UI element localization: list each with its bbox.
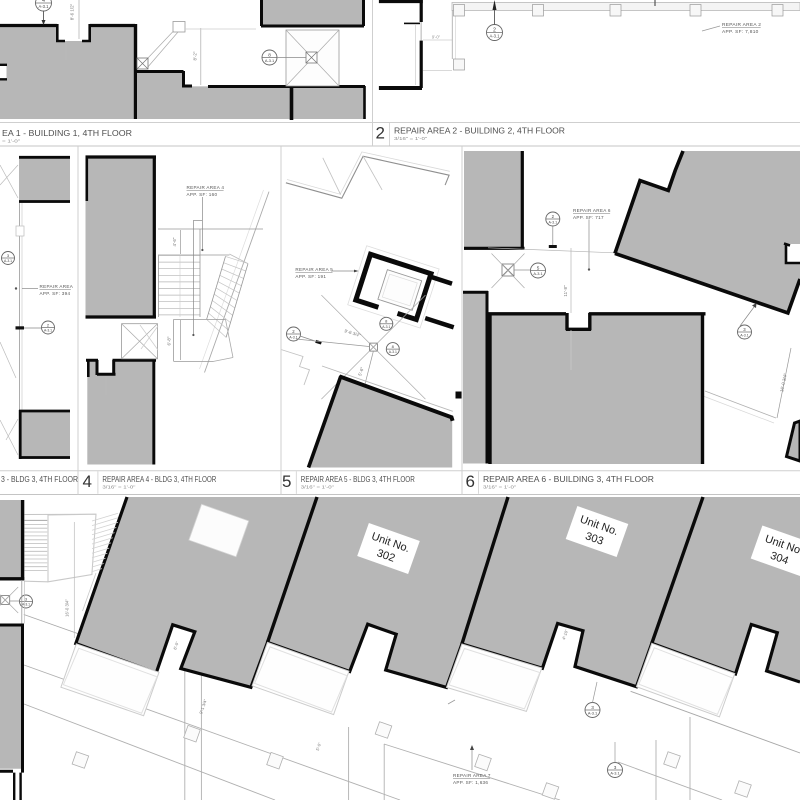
svg-text:A-3.1: A-3.1 [740,333,749,337]
svg-text:REPAIR AREA 4 - BLDG 3, 4TH FL: REPAIR AREA 4 - BLDG 3, 4TH FLOOR [102,475,216,484]
svg-text:A-3.1: A-3.1 [489,33,500,38]
svg-text:6: 6 [466,472,475,491]
svg-text:3/16" = 1'-0": 3/16" = 1'-0" [301,484,334,489]
svg-text:REPAIR AREA 5: REPAIR AREA 5 [295,267,333,272]
svg-text:A-3.1: A-3.1 [533,271,542,276]
svg-text:APP. SF: 394: APP. SF: 394 [40,291,71,296]
svg-text:APP. SF: 1,636: APP. SF: 1,636 [453,780,488,785]
svg-text:8'-6 1/2": 8'-6 1/2" [70,3,75,20]
svg-text:4'-6": 4'-6" [172,237,177,246]
svg-text:4: 4 [83,472,92,491]
svg-text:REPAIR AREA 5 - BLDG 3, 4TH FL: REPAIR AREA 5 - BLDG 3, 4TH FLOOR [301,475,415,484]
svg-text:A-3.1: A-3.1 [610,771,619,776]
svg-text:APP. SF: 191: APP. SF: 191 [295,274,326,279]
svg-text:REPAIR AREA 7: REPAIR AREA 7 [453,773,491,778]
svg-text:3: 3 [614,765,617,770]
svg-text:16'-0 3/4": 16'-0 3/4" [65,599,70,617]
svg-text:11'-8": 11'-8" [563,285,568,297]
svg-text:REPAIR AREA 4: REPAIR AREA 4 [187,185,225,190]
svg-text:3: 3 [591,705,594,710]
svg-text:2: 2 [376,124,385,143]
svg-text:= 1'-0": = 1'-0" [2,139,21,144]
svg-text:A-3.1: A-3.1 [38,4,49,9]
svg-text:3 - BLDG 3, 4TH FLOOR: 3 - BLDG 3, 4TH FLOOR [1,475,78,484]
svg-text:9'-0": 9'-0" [432,35,441,40]
svg-text:REPAIR AREA: REPAIR AREA [40,284,74,289]
svg-text:3/16" = 1'-0": 3/16" = 1'-0" [102,484,135,489]
svg-text:A-3.1: A-3.1 [22,603,30,607]
svg-text:5: 5 [282,472,291,491]
svg-text:8: 8 [268,52,271,57]
svg-text:REPAIR AREA 2: REPAIR AREA 2 [722,22,761,28]
svg-text:A-3.1: A-3.1 [382,325,390,329]
svg-text:APP. SF: 160: APP. SF: 160 [187,192,218,197]
svg-text:A-3.1: A-3.1 [549,220,558,224]
svg-text:6'-8": 6'-8" [167,336,172,345]
svg-text:3/16" = 1'-0": 3/16" = 1'-0" [483,484,516,489]
svg-text:8'-2": 8'-2" [193,51,198,60]
svg-text:A-3.1: A-3.1 [588,711,597,716]
svg-text:5: 5 [537,265,540,270]
svg-text:REPAIR AREA 6 - BUILDING 3, 4T: REPAIR AREA 6 - BUILDING 3, 4TH FLOOR [483,475,654,484]
svg-text:REPAIR AREA 2 - BUILDING 2, 4T: REPAIR AREA 2 - BUILDING 2, 4TH FLOOR [394,127,565,136]
svg-text:APP. SF: 717: APP. SF: 717 [573,215,604,220]
svg-text:2: 2 [493,27,496,33]
svg-text:A-3.1: A-3.1 [265,58,274,63]
svg-text:A-3.1: A-3.1 [44,329,52,333]
svg-text:REPAIR AREA 6: REPAIR AREA 6 [573,208,611,213]
svg-text:EA 1 - BUILDING 1, 4TH FLOOR: EA 1 - BUILDING 1, 4TH FLOOR [2,129,132,138]
svg-text:A-3.1: A-3.1 [4,259,12,263]
svg-text:3/16" = 1'-0": 3/16" = 1'-0" [394,136,427,141]
svg-text:A-3.1: A-3.1 [389,350,397,354]
svg-text:APP. SF: 7,810: APP. SF: 7,810 [722,29,759,35]
